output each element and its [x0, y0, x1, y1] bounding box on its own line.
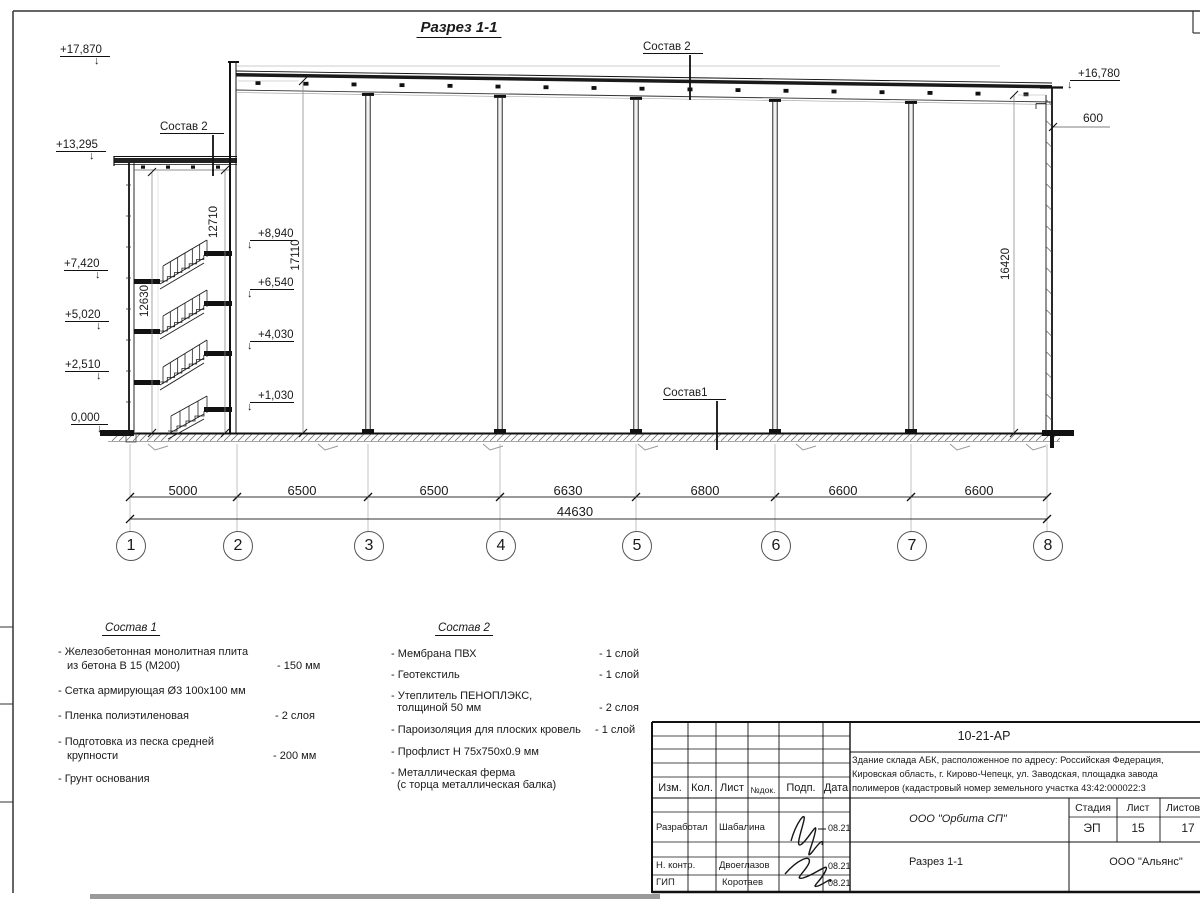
project-description: Здание склада АБК, расположенное по адре…: [852, 753, 1198, 797]
description-line: Кировская область, г. Кирово-Чепецк, ул.…: [852, 767, 1198, 781]
elevation-mark: +13,295: [56, 139, 106, 152]
legend-item: толщиной 50 мм: [397, 702, 481, 714]
span-dimension: 6800: [691, 483, 720, 498]
legend-value: - 1 слой: [595, 724, 635, 736]
signatures: [785, 817, 831, 887]
drawing-title: Разрез 1-1: [416, 19, 501, 38]
span-dimension: 6630: [554, 483, 583, 498]
elevation-mark: +4,030: [250, 329, 294, 342]
legend-value: - 1 слой: [599, 669, 639, 681]
vertical-dimension: 16420: [1000, 248, 1012, 280]
parapet-dimension: 600: [1083, 111, 1103, 125]
elevation-mark: +17,870: [60, 44, 110, 57]
elevation-mark: +16,780: [1070, 68, 1120, 81]
elevation-mark: +8,940: [250, 228, 294, 241]
span-dimension: 6500: [288, 483, 317, 498]
legend-item: - Железобетонная монолитная плита: [58, 646, 248, 658]
stair-tower: [100, 156, 237, 442]
role-label: Разработал: [656, 822, 708, 833]
legend-value: - 1 слой: [599, 648, 639, 660]
person-name: Шабалина: [719, 822, 765, 833]
grid-bubble: 7: [897, 531, 927, 561]
grid-bubble: 1: [116, 531, 146, 561]
legend-value: - 2 слоя: [599, 702, 639, 714]
legend-item: - Утеплитель ПЕНОПЛЭКС,: [391, 690, 532, 702]
grid-bubble: 4: [486, 531, 516, 561]
col-header: №док.: [751, 785, 776, 795]
sheet-header: Лист: [1127, 802, 1150, 814]
grid-bubble: 3: [354, 531, 384, 561]
elevation-arrow-icon: ↓: [95, 270, 101, 281]
vertical-dimension: 12630: [139, 285, 151, 317]
doc-number: 10-21-АР: [958, 729, 1011, 743]
drawing-name: Разрез 1-1: [909, 856, 963, 868]
vertical-dimension: 12710: [208, 206, 220, 238]
elevation-mark: +7,420: [64, 258, 108, 271]
elevation-arrow-icon: ↓: [247, 402, 253, 413]
col-header: Кол.: [691, 782, 713, 794]
elevation-mark: +1,030: [250, 390, 294, 403]
org-name: ООО "Орбита СП": [909, 813, 1007, 825]
sostav2-label: Состав 2: [643, 41, 703, 54]
date-value: 08.21: [828, 861, 851, 871]
elevation-arrow-icon: ↓: [96, 371, 102, 382]
sostav1-label: Состав1: [663, 387, 726, 400]
stage-header: Стадия: [1075, 802, 1111, 814]
legend-item: - Пароизоляция для плоских кровель: [391, 724, 581, 736]
role-label: ГИП: [656, 877, 675, 888]
role-label: Н. контр.: [656, 860, 695, 871]
legend-item: из бетона В 15 (М200): [67, 660, 180, 672]
description-line: полимеров (кадастровый номер земельного …: [852, 781, 1198, 795]
legend-item: (с торца металлическая балка): [397, 779, 556, 791]
elevation-arrow-icon: ↓: [97, 424, 103, 435]
grid-bubble: 2: [223, 531, 253, 561]
date-value: 08.21: [828, 823, 851, 833]
col-header: Подп.: [786, 782, 815, 794]
elevation-arrow-icon: ↓: [96, 321, 102, 332]
col-header: Дата: [824, 782, 848, 794]
legend-item: - Геотекстиль: [391, 669, 460, 681]
legend-item: - Мембрана ПВХ: [391, 648, 476, 660]
col-header: Лист: [720, 782, 744, 794]
span-dimension: 5000: [169, 483, 198, 498]
grid2-wall: [228, 62, 239, 433]
legend2-heading: Состав 2: [435, 622, 493, 636]
total-dimension: 44630: [557, 504, 593, 519]
vertical-dimension: 17110: [290, 239, 302, 270]
main-roof: [236, 66, 1052, 105]
col-header: Изм.: [658, 782, 682, 794]
legend-value: - 150 мм: [277, 660, 320, 672]
elevation-arrow-icon: ↓: [1067, 80, 1073, 91]
generated-linework: [126, 77, 1052, 535]
elevation-mark: +2,510: [65, 359, 109, 372]
legend-value: - 2 слоя: [275, 710, 315, 722]
sostav2-label: Состав 2: [160, 121, 224, 134]
right-wall: [1036, 88, 1074, 449]
span-dimension: 6600: [965, 483, 994, 498]
legend1-heading: Состав 1: [102, 622, 160, 636]
elevation-mark: +5,020: [65, 309, 109, 322]
sheets-header: Листов: [1166, 802, 1200, 814]
legend-item: крупности: [67, 750, 118, 762]
elevation-arrow-icon: ↓: [247, 341, 253, 352]
legend-item: - Металлическая ферма: [391, 767, 515, 779]
org-name: ООО "Альянс": [1109, 856, 1183, 868]
legend-item: - Сетка армирующая Ø3 100х100 мм: [58, 685, 246, 697]
elevation-arrow-icon: ↓: [89, 151, 95, 162]
sheets-value: 17: [1181, 821, 1194, 835]
description-line: Здание склада АБК, расположенное по адре…: [852, 753, 1198, 767]
elevation-arrow-icon: ↓: [247, 289, 253, 300]
grid-bubble: 5: [622, 531, 652, 561]
span-dimension: 6500: [420, 483, 449, 498]
legend-value: - 200 мм: [273, 750, 316, 762]
sheet-value: 15: [1131, 821, 1144, 835]
grid-bubble: 8: [1033, 531, 1063, 561]
elevation-arrow-icon: ↓: [247, 240, 253, 251]
person-name: Коротаев: [722, 877, 763, 888]
legend-item: - Профлист Н 75х750х0.9 мм: [391, 746, 539, 758]
elevation-mark: +6,540: [250, 277, 294, 290]
legend-item: - Пленка полиэтиленовая: [58, 710, 189, 722]
elevation-arrow-icon: ↓: [94, 56, 100, 67]
grid-bubble: 6: [761, 531, 791, 561]
legend-item: - Грунт основания: [58, 773, 150, 785]
span-dimension: 6600: [829, 483, 858, 498]
stage-value: ЭП: [1083, 821, 1100, 835]
date-value: 08.21: [828, 878, 851, 888]
person-name: Двоеглазов: [719, 860, 770, 871]
legend-item: - Подготовка из песка средней: [58, 736, 214, 748]
drawing-sheet: { "icons": { "elevation_arrow": "↓" }, "…: [0, 0, 1200, 900]
floor-slab: [108, 434, 1060, 442]
